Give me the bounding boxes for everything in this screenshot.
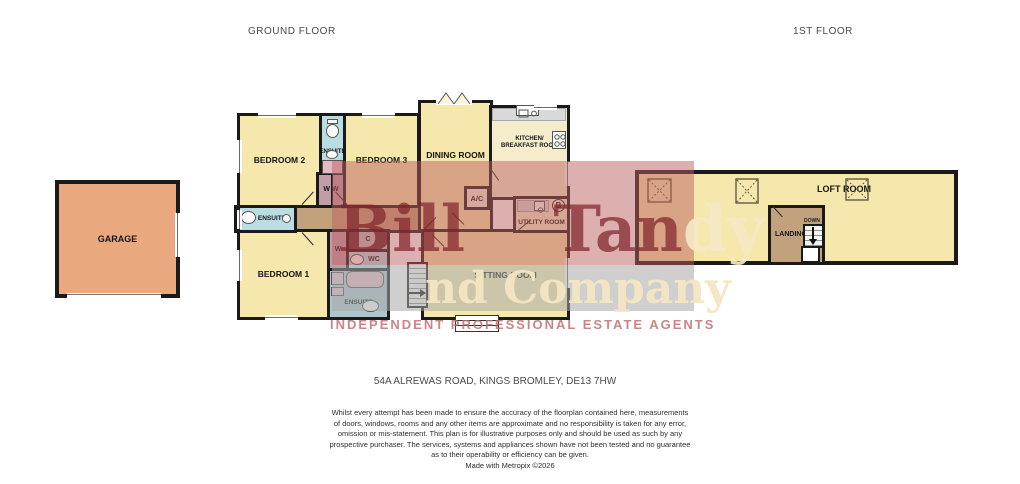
- room-bedroom-3: BEDROOM 3: [343, 113, 420, 208]
- bedroom2-label: BEDROOM 2: [254, 155, 305, 165]
- wardrobe-single-label: W: [335, 246, 342, 254]
- toilet-icon: [350, 254, 364, 265]
- window: [534, 105, 557, 110]
- skylight-icon: [735, 178, 759, 209]
- toilet-icon: [241, 211, 256, 224]
- first-floor-heading: 1ST FLOOR: [793, 26, 853, 37]
- disclaimer-line: Whilst every attempt has been made to en…: [210, 408, 810, 419]
- ac-label: A/C: [471, 194, 484, 203]
- stairs-up-arrowhead: [420, 289, 426, 297]
- cupboard-label: C: [365, 236, 370, 244]
- sink-icon: [326, 150, 338, 159]
- ground-floor-heading: GROUND FLOOR: [248, 26, 336, 37]
- stair-void: [801, 246, 820, 263]
- hob-icon: [552, 131, 566, 149]
- garage-side-window: [175, 213, 180, 257]
- sink-icon: [331, 272, 344, 285]
- window: [258, 113, 296, 118]
- window: [265, 315, 298, 320]
- staircase-ground: [407, 262, 428, 308]
- skylight-icon: [845, 178, 869, 206]
- metropix-credit: Made with Metropix ©2026: [210, 461, 810, 472]
- property-address: 54A ALREWAS ROAD, KINGS BROMLEY, DE13 7H…: [0, 376, 990, 387]
- wardrobe-double: W W: [316, 172, 346, 208]
- wc-label: WC: [368, 256, 380, 264]
- toilet-icon: [326, 124, 339, 138]
- room-ac: A/C: [464, 186, 490, 210]
- room-dining: DINING ROOM: [418, 100, 493, 233]
- vanity-unit-icon: [322, 160, 343, 174]
- stairs-down-arrowhead: [809, 239, 817, 245]
- room-garage: GARAGE: [55, 180, 180, 298]
- garage-label: GARAGE: [98, 234, 138, 245]
- cabinet-icon: [331, 287, 344, 296]
- disclaimer: Whilst every attempt has been made to en…: [210, 408, 810, 471]
- disclaimer-line: as to their operability or efficiency ca…: [210, 450, 810, 461]
- floorplan-page: GROUND FLOOR 1ST FLOOR GARAGE BEDROOM 2 …: [0, 0, 1020, 484]
- bay-window-icon: [455, 315, 499, 332]
- bathtub-icon: [346, 271, 384, 288]
- bedroom1-label: BEDROOM 1: [258, 269, 309, 279]
- dining-label: DINING ROOM: [426, 150, 485, 160]
- window: [237, 250, 242, 281]
- boiler-icon: B: [552, 199, 565, 212]
- sitting-label: SITTING ROOM: [474, 270, 536, 280]
- disclaimer-line: omission or mis-statement. This plan is …: [210, 429, 810, 440]
- window: [565, 162, 570, 186]
- window: [237, 140, 242, 173]
- sink-icon: [282, 214, 291, 223]
- room-bedroom-1: BEDROOM 1: [237, 229, 330, 320]
- toilet-icon: [362, 300, 379, 312]
- window: [565, 258, 570, 288]
- disclaimer-line: prospective purchaser. The services, sys…: [210, 440, 810, 451]
- french-door-icon: [436, 90, 472, 105]
- garage-door-opening: [67, 293, 161, 298]
- room-sitting: SITTING ROOM: [421, 229, 570, 320]
- disclaimer-line: of doors, windows, rooms and any other i…: [210, 419, 810, 430]
- window: [237, 210, 242, 229]
- kitchen-label: KITCHEN/BREAKFAST ROOM: [501, 136, 558, 150]
- washer-icon: [534, 201, 545, 211]
- window: [362, 113, 395, 118]
- skylight-icon: [647, 178, 672, 208]
- bedroom3-label: BEDROOM 3: [356, 155, 407, 165]
